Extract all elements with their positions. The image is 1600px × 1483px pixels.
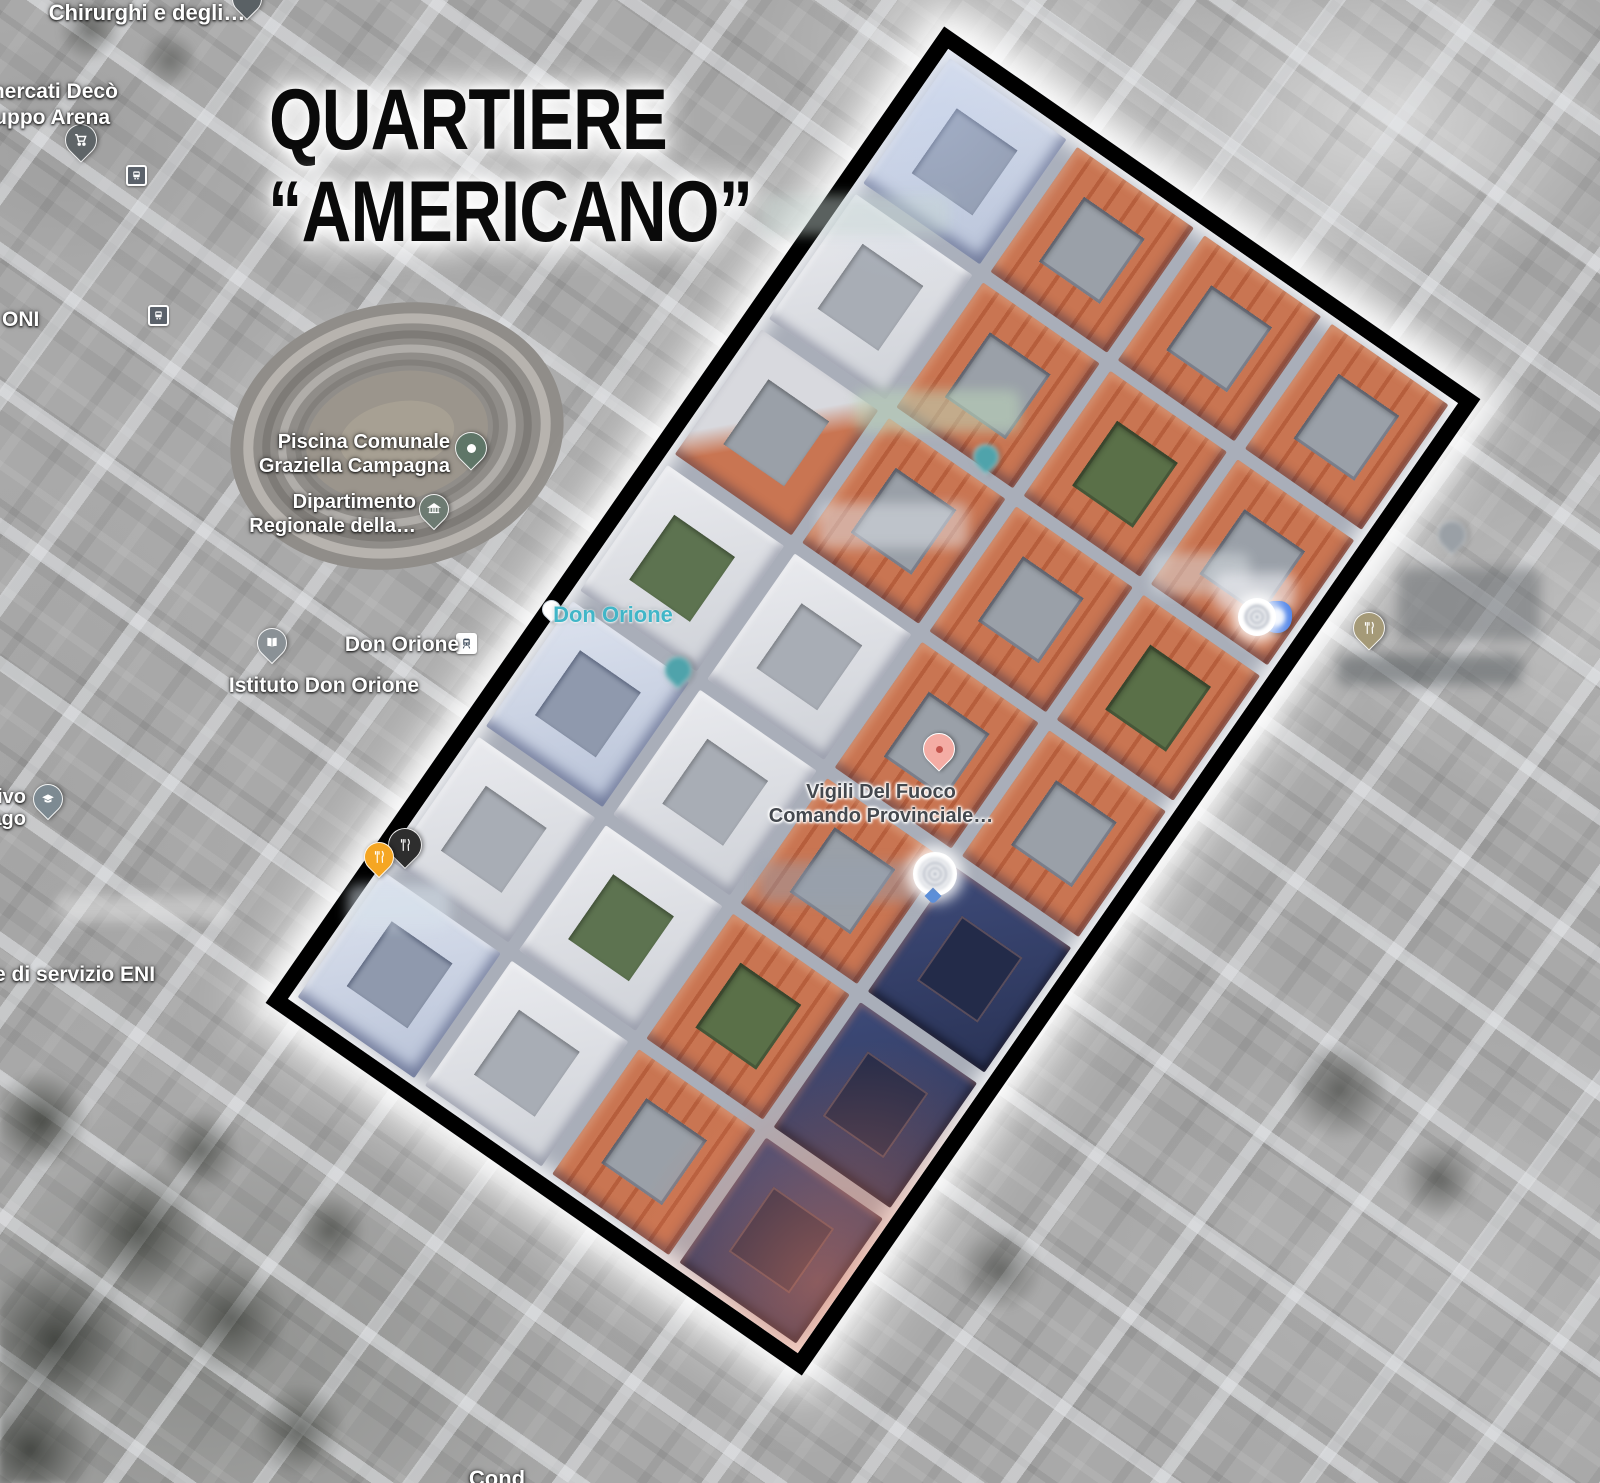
label-oni: ONI xyxy=(2,308,39,332)
blurred-label xyxy=(758,862,930,902)
poster-title: QUARTIERE “AMERICANO” xyxy=(218,74,718,258)
label-edu-fragment: ivo ago xyxy=(0,786,26,830)
blurred-label xyxy=(855,390,1020,432)
bus-icon xyxy=(153,310,164,321)
label-dipartimento-line2: Regionale della… xyxy=(249,514,416,538)
pin-dot xyxy=(936,746,943,753)
label-vigili-line2: Comando Provinciale… xyxy=(769,804,994,828)
bus-stop-icon xyxy=(148,305,169,326)
label-bottom-partial: Cond xyxy=(469,1466,525,1483)
blurred-label xyxy=(348,885,450,928)
graduation-cap-icon xyxy=(34,785,62,813)
utensils-icon xyxy=(1354,613,1384,643)
label-deco-line1: mercati Decò xyxy=(0,79,118,105)
label-don-orione-poi: Don Orione xyxy=(553,602,673,628)
train-icon xyxy=(460,637,473,650)
blurred-logo-pin xyxy=(913,852,957,896)
map-canvas: Chirurghi e degli… mercati Decò ruppo Ar… xyxy=(0,0,1600,1483)
label-piscina-line1: Piscina Comunale xyxy=(259,430,450,454)
label-vigili-line1: Vigili Del Fuoco xyxy=(769,780,994,804)
label-deco: mercati Decò ruppo Arena xyxy=(0,79,118,131)
blurred-logo-pin-small xyxy=(1238,598,1276,636)
blurred-label xyxy=(818,503,968,548)
blurred-label xyxy=(57,895,230,922)
blurred-label xyxy=(760,195,950,235)
museum-icon xyxy=(420,495,448,523)
blurred-label xyxy=(1398,568,1540,640)
label-vigili: Vigili Del Fuoco Comando Provinciale… xyxy=(769,780,994,828)
label-chirurghi: Chirurghi e degli… xyxy=(49,0,246,26)
book-icon xyxy=(258,629,286,657)
blurred-label xyxy=(1337,655,1522,685)
label-don-orione-station: Don Orione xyxy=(345,633,459,657)
utensils-icon xyxy=(365,843,393,871)
label-servizio-eni: e di servizio ENI xyxy=(0,963,155,987)
label-deco-line2: ruppo Arena xyxy=(0,105,118,131)
poster-title-line1: QUARTIERE xyxy=(268,74,668,166)
bus-stop-icon xyxy=(126,165,147,186)
bus-icon xyxy=(131,170,142,181)
label-dipartimento: Dipartimento Regionale della… xyxy=(249,490,416,538)
label-piscina: Piscina Comunale Graziella Campagna xyxy=(259,430,450,478)
pin-dot xyxy=(467,444,476,453)
poster-title-line2: “AMERICANO” xyxy=(268,166,668,258)
label-edu-line2: ago xyxy=(0,808,26,830)
label-piscina-line2: Graziella Campagna xyxy=(259,454,450,478)
label-edu-line1: ivo xyxy=(0,786,26,808)
label-dipartimento-line1: Dipartimento xyxy=(249,490,416,514)
label-istituto-don-orione: Istituto Don Orione xyxy=(229,674,419,698)
